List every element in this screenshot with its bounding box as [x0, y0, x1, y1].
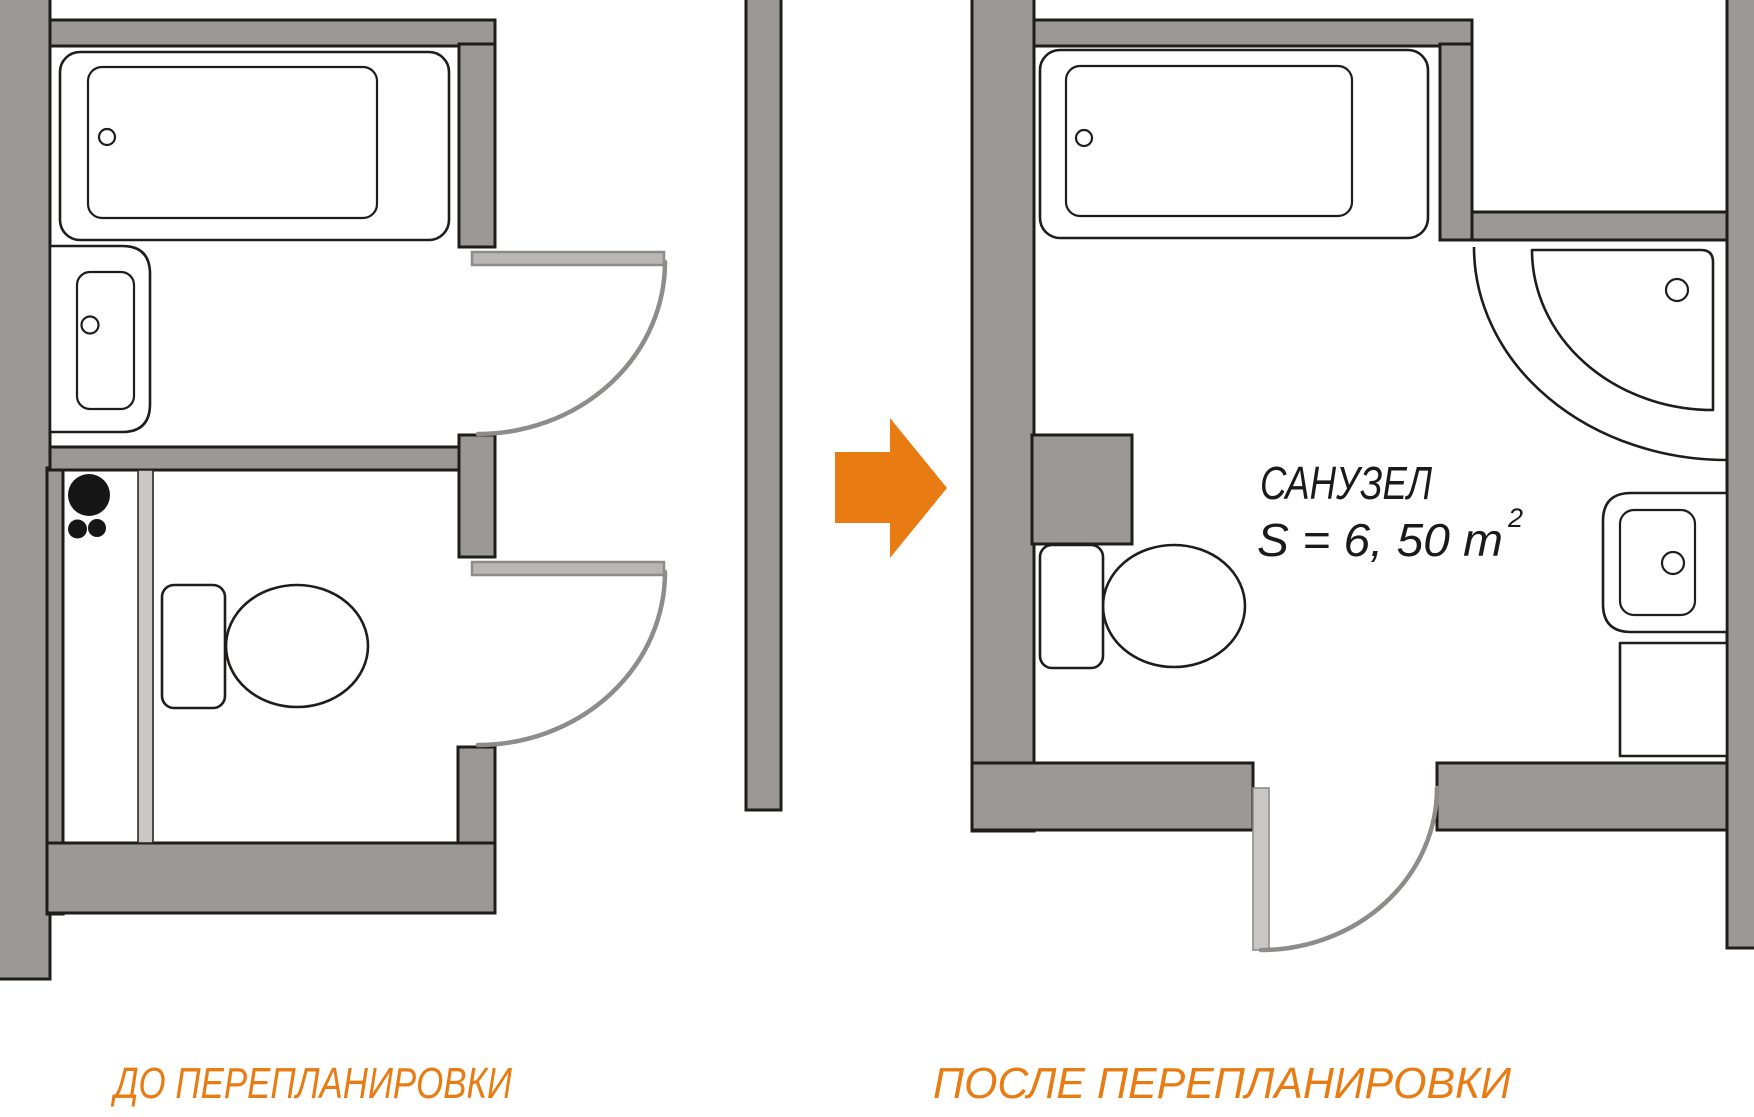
bathtub-drain: [99, 129, 115, 145]
after-plan: САНУЗЕЛ S = 6, 50 m 2: [972, 0, 1754, 950]
toilet-after: [1040, 545, 1245, 668]
wc-door-swing-arc: [478, 572, 665, 745]
bathroom-door-swing-arc: [478, 262, 665, 434]
transform-arrow-icon: [835, 418, 947, 558]
room-name-label: САНУЗЕЛ: [1260, 457, 1432, 509]
toilet-bowl: [226, 585, 368, 707]
after-bottom-wall-left: [972, 763, 1253, 830]
water-pipe-left: [68, 520, 87, 539]
after-caption: ПОСЛЕ ПЕРЕПЛАНИРОВКИ: [933, 1059, 1512, 1108]
bathtub-drain: [1076, 130, 1092, 146]
toilet-tank: [1040, 545, 1103, 668]
before-right-stub-lower: [458, 747, 495, 845]
sewer-pipes: [68, 474, 110, 539]
after-bottom-wall-right: [1437, 763, 1727, 830]
floor-plan-comparison: САНУЗЕЛ S = 6, 50 m 2 ДО ПЕРЕПЛАНИРОВКИ …: [0, 0, 1754, 1117]
after-niche-bottom-wall: [1472, 212, 1728, 240]
room-area-superscript: 2: [1507, 503, 1523, 533]
before-caption: ДО ПЕРЕПЛАНИРОВКИ: [110, 1059, 512, 1108]
room-area-label: S = 6, 50 m: [1257, 514, 1503, 566]
after-door-swing-arc: [1261, 788, 1437, 950]
toilet-tank: [162, 585, 225, 708]
bathtub-before: [60, 52, 449, 240]
after-right-wall: [1727, 0, 1754, 948]
shaft-partition: [138, 470, 153, 843]
after-door-leaf: [1253, 788, 1269, 950]
toilet-bowl: [1103, 545, 1245, 667]
washbasin-drain: [1662, 552, 1684, 574]
room-label: САНУЗЕЛ S = 6, 50 m 2: [1257, 457, 1523, 566]
bathtub-basin: [1066, 66, 1352, 216]
shower-tray: [1532, 250, 1713, 410]
washbasin-before: [50, 246, 150, 432]
before-top-wall: [50, 20, 495, 46]
corridor-wall: [746, 0, 781, 810]
soil-pipe: [68, 474, 110, 516]
before-right-wall-upper: [459, 44, 495, 247]
bathroom-door-leaf: [472, 252, 664, 265]
before-middle-wall: [50, 447, 460, 470]
toilet-before: [162, 585, 368, 708]
after-top-wall: [1034, 20, 1472, 46]
before-bottom-wall: [47, 843, 495, 913]
after-niche-side-wall: [1440, 44, 1472, 240]
before-plan: [0, 0, 665, 979]
washbasin-bowl: [77, 272, 134, 409]
shower-drain: [1666, 279, 1688, 301]
bathtub-basin: [88, 67, 377, 218]
wc-door: [472, 562, 665, 745]
before-left-wall: [0, 0, 50, 979]
bathtub-after: [1040, 50, 1428, 238]
wc-door-leaf: [472, 562, 664, 575]
before-right-stub-middle: [459, 435, 495, 557]
bathroom-door: [472, 252, 665, 434]
washbasin-drain: [82, 317, 99, 334]
corner-shower: [1474, 247, 1727, 460]
washbasin-after: [1603, 493, 1727, 632]
after-pipe-shaft-pilaster: [1032, 435, 1132, 544]
washing-machine: [1620, 643, 1727, 756]
after-left-wall: [972, 0, 1034, 831]
after-entrance-door: [1253, 788, 1437, 950]
water-pipe-right: [88, 519, 106, 537]
